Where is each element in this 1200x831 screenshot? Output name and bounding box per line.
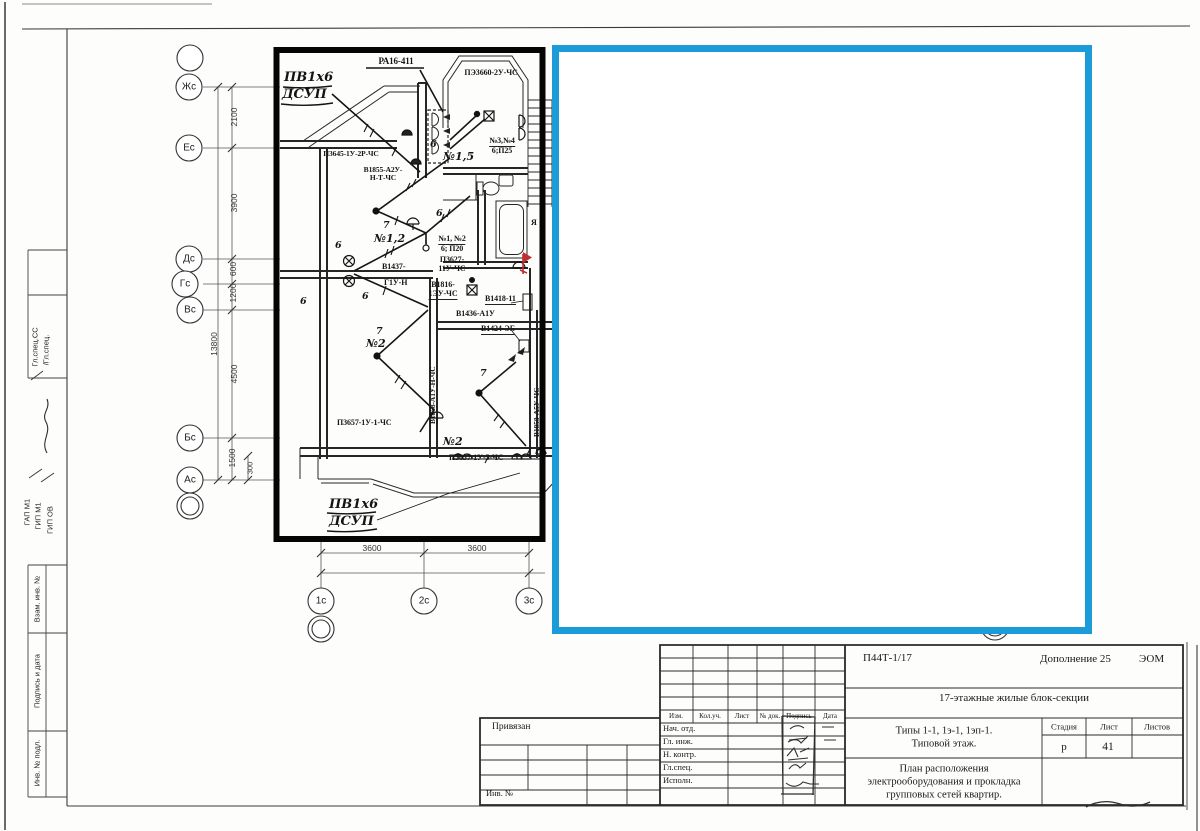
title-block-lines	[480, 645, 1183, 805]
plan-label-v1858-right: В1858-А5У-ЧС	[533, 388, 541, 437]
titleblock-sheetname-line3: групповых сетей квартир.	[886, 789, 1002, 800]
titleblock-col-list: Лист	[735, 713, 750, 721]
margin-label-inv: Инв. № подл.	[33, 740, 42, 787]
plan-label-n34: №3,№4 6;П25	[489, 137, 515, 156]
plan-label-v1855-line2: Н-Т-ЧС	[364, 174, 403, 182]
plan-label-p3645: П3645-1У-2Р-ЧС	[323, 150, 378, 158]
drawing-linework	[0, 0, 1200, 831]
plan-label-v1424: В1424-ЭБ	[481, 325, 515, 335]
handwritten-n15: №1,5	[443, 150, 474, 163]
dim-1500: 1500	[227, 449, 237, 468]
plan-label-v1855: В1855-А2У- Н-Т-ЧС	[364, 166, 403, 183]
titleblock-inv-no: Инв. №	[486, 789, 513, 798]
axis-label-3s: 3с	[524, 596, 535, 607]
fixture-icon	[508, 347, 525, 362]
wire-count-6: 6	[430, 139, 437, 150]
titleblock-col-koluch: Кол.уч.	[699, 713, 721, 721]
dim-13800: 13800	[209, 332, 219, 356]
margin-label-spec1: Гл.спец.СС	[31, 327, 40, 366]
plan-label-v1436: В1436-А1У	[456, 310, 495, 319]
axis-label-1s: 1с	[316, 596, 327, 607]
junction-box-icon	[484, 111, 494, 121]
junction-box-icon	[467, 285, 477, 295]
wire-count-6: 6	[335, 240, 342, 251]
switch-icon	[344, 256, 355, 267]
titleblock-object: 17-этажные жилые блок-секции	[939, 693, 1089, 705]
junction-dot-icon	[474, 111, 479, 116]
axes-dimensions	[172, 45, 545, 642]
titleblock-type-line1: Типы 1-1, 1э-1, 1эп-1.	[896, 725, 993, 736]
dim-1200: 1200	[228, 284, 238, 303]
axis-label-as: Ас	[184, 475, 196, 486]
titleblock-sheet-number: 41	[1102, 741, 1114, 753]
plan-label-v1437-line1: В1437-	[382, 263, 405, 272]
plan-label-pe3660: ПЭ3660-2У-ЧС	[464, 69, 517, 78]
titleblock-row-glinzh: Гл. инж.	[663, 737, 693, 746]
dim-2100: 2100	[229, 108, 239, 127]
cyan-highlight-box	[556, 49, 1089, 631]
margin-label-gap: ГАП М1	[23, 499, 32, 525]
margin-label-podpis: Подпись и дата	[33, 654, 42, 708]
plan-label-ya: Я	[531, 219, 537, 228]
plan-label-v1418: В1418-11	[485, 295, 516, 305]
handwritten-n2-right: №2	[443, 435, 463, 448]
sconce-icon	[519, 115, 525, 127]
plan-label-n12: №1, №2 6; П20	[438, 235, 465, 254]
axis-label-bs: Бс	[184, 433, 196, 444]
titleblock-stage-value: р	[1061, 742, 1067, 754]
titleblock-col-ndok: № док.	[760, 713, 781, 721]
plan-label-pa16: РА16-411	[378, 56, 413, 66]
handwritten-n12: №1,2	[374, 232, 405, 245]
handwritten-pv-bottom: ПВ1х6	[329, 497, 378, 512]
wire-count-7: 7	[383, 220, 390, 231]
handwritten-dsup-bottom: ДСУП	[329, 514, 374, 529]
dim-4500: 4500	[229, 365, 239, 384]
titleblock-row-glspec: Гл.спец.	[663, 763, 692, 772]
wire-count-6: 6	[362, 291, 369, 302]
titleblock-col-izm: Изм.	[669, 713, 683, 721]
margin-label-gip2: ГИП ОВ	[46, 506, 55, 534]
handwritten-dsup-top: ДСУП	[282, 87, 327, 102]
titleblock-supplement: Дополнение 25	[1040, 654, 1111, 666]
titleblock-row-ispoln: Исполн.	[663, 776, 693, 785]
margin-label-gip1: ГИП М1	[34, 502, 43, 529]
axis-label-gs: Гс	[180, 279, 190, 290]
plan-label-p3627-line2: 11У-ЧС	[438, 265, 465, 274]
margin-label-spec2: /Гл.спец.	[42, 335, 51, 366]
titleblock-sheet-label: Лист	[1100, 722, 1118, 731]
plan-label-p3657-right: П3657-1У-5-ЧС	[449, 454, 503, 463]
dim-3600-a: 3600	[363, 543, 382, 553]
plan-label-p3657-left: П3657-1У-1-ЧС	[337, 419, 391, 428]
ceiling-light-icon	[374, 353, 380, 359]
handwritten-n2-left: №2	[366, 337, 386, 350]
titleblock-sheetname-line2: электрооборудования и прокладка	[867, 776, 1020, 787]
titleblock-stage-label: Стадия	[1051, 722, 1077, 731]
axis-label-es: Ес	[183, 143, 195, 154]
ceiling-light-icon	[373, 208, 379, 214]
titleblock-sheets-label: Листов	[1144, 722, 1170, 731]
titleblock-row-nkontr: Н. контр.	[663, 750, 696, 759]
titleblock-type-line2: Типовой этаж.	[912, 738, 977, 749]
titleblock-col-podpis: Подпись	[786, 713, 812, 721]
junction-dot-icon	[470, 278, 475, 283]
margin-label-vzam: Взам. инв. №	[33, 576, 42, 622]
axis-label-ds: Дс	[183, 254, 195, 265]
titleblock-row-nachotd: Нач. отд.	[663, 724, 695, 733]
axis-label-zhs: Жс	[182, 82, 196, 93]
titleblock-privyazan: Привязан	[492, 722, 530, 732]
plan-label-p3627: П3627- 11У-ЧС	[438, 256, 465, 274]
dim-300: 300	[246, 462, 255, 475]
titleblock-sheetname-line1: План расположения	[899, 763, 988, 774]
dim-600: 600	[228, 262, 238, 276]
axis-label-2s: 2с	[419, 596, 430, 607]
wire-count-7: 7	[376, 326, 383, 337]
plan-label-n34-line2: 6;П25	[489, 147, 515, 156]
dim-3600-b: 3600	[468, 543, 487, 553]
plan-label-v1858-left: В1858-А1У-Н-ЧС	[429, 366, 437, 424]
titleblock-dept: ЭОМ	[1139, 654, 1164, 666]
handwritten-pv-top: ПВ1х6	[284, 70, 333, 85]
titleblock-code: П44Т-1/17	[863, 653, 912, 665]
sconce-icon	[519, 128, 525, 140]
wire-count-7: 7	[480, 368, 487, 379]
drawing-sheet: Жс Ес Дс Гс Вс Бс Ас 1с 2с 3с 2100 3900 …	[0, 0, 1200, 831]
ceiling-light-icon	[476, 390, 482, 396]
plan-label-v1816: В1816- 1ЭУ-ЧС	[428, 281, 457, 300]
plan-label-n12-line2: 6; П20	[438, 245, 465, 254]
wire-count-6: 6	[436, 208, 443, 219]
wire-count-6: 6	[300, 296, 307, 307]
plan-label-v1816-line2: 1ЭУ-ЧС	[428, 290, 457, 300]
axis-label-vs: Вс	[184, 305, 196, 316]
socket-icon	[423, 240, 429, 251]
plan-label-v1437-line2: Г1У-Н	[384, 279, 407, 288]
titleblock-col-data: Дата	[823, 713, 837, 721]
dim-3900: 3900	[229, 194, 239, 213]
